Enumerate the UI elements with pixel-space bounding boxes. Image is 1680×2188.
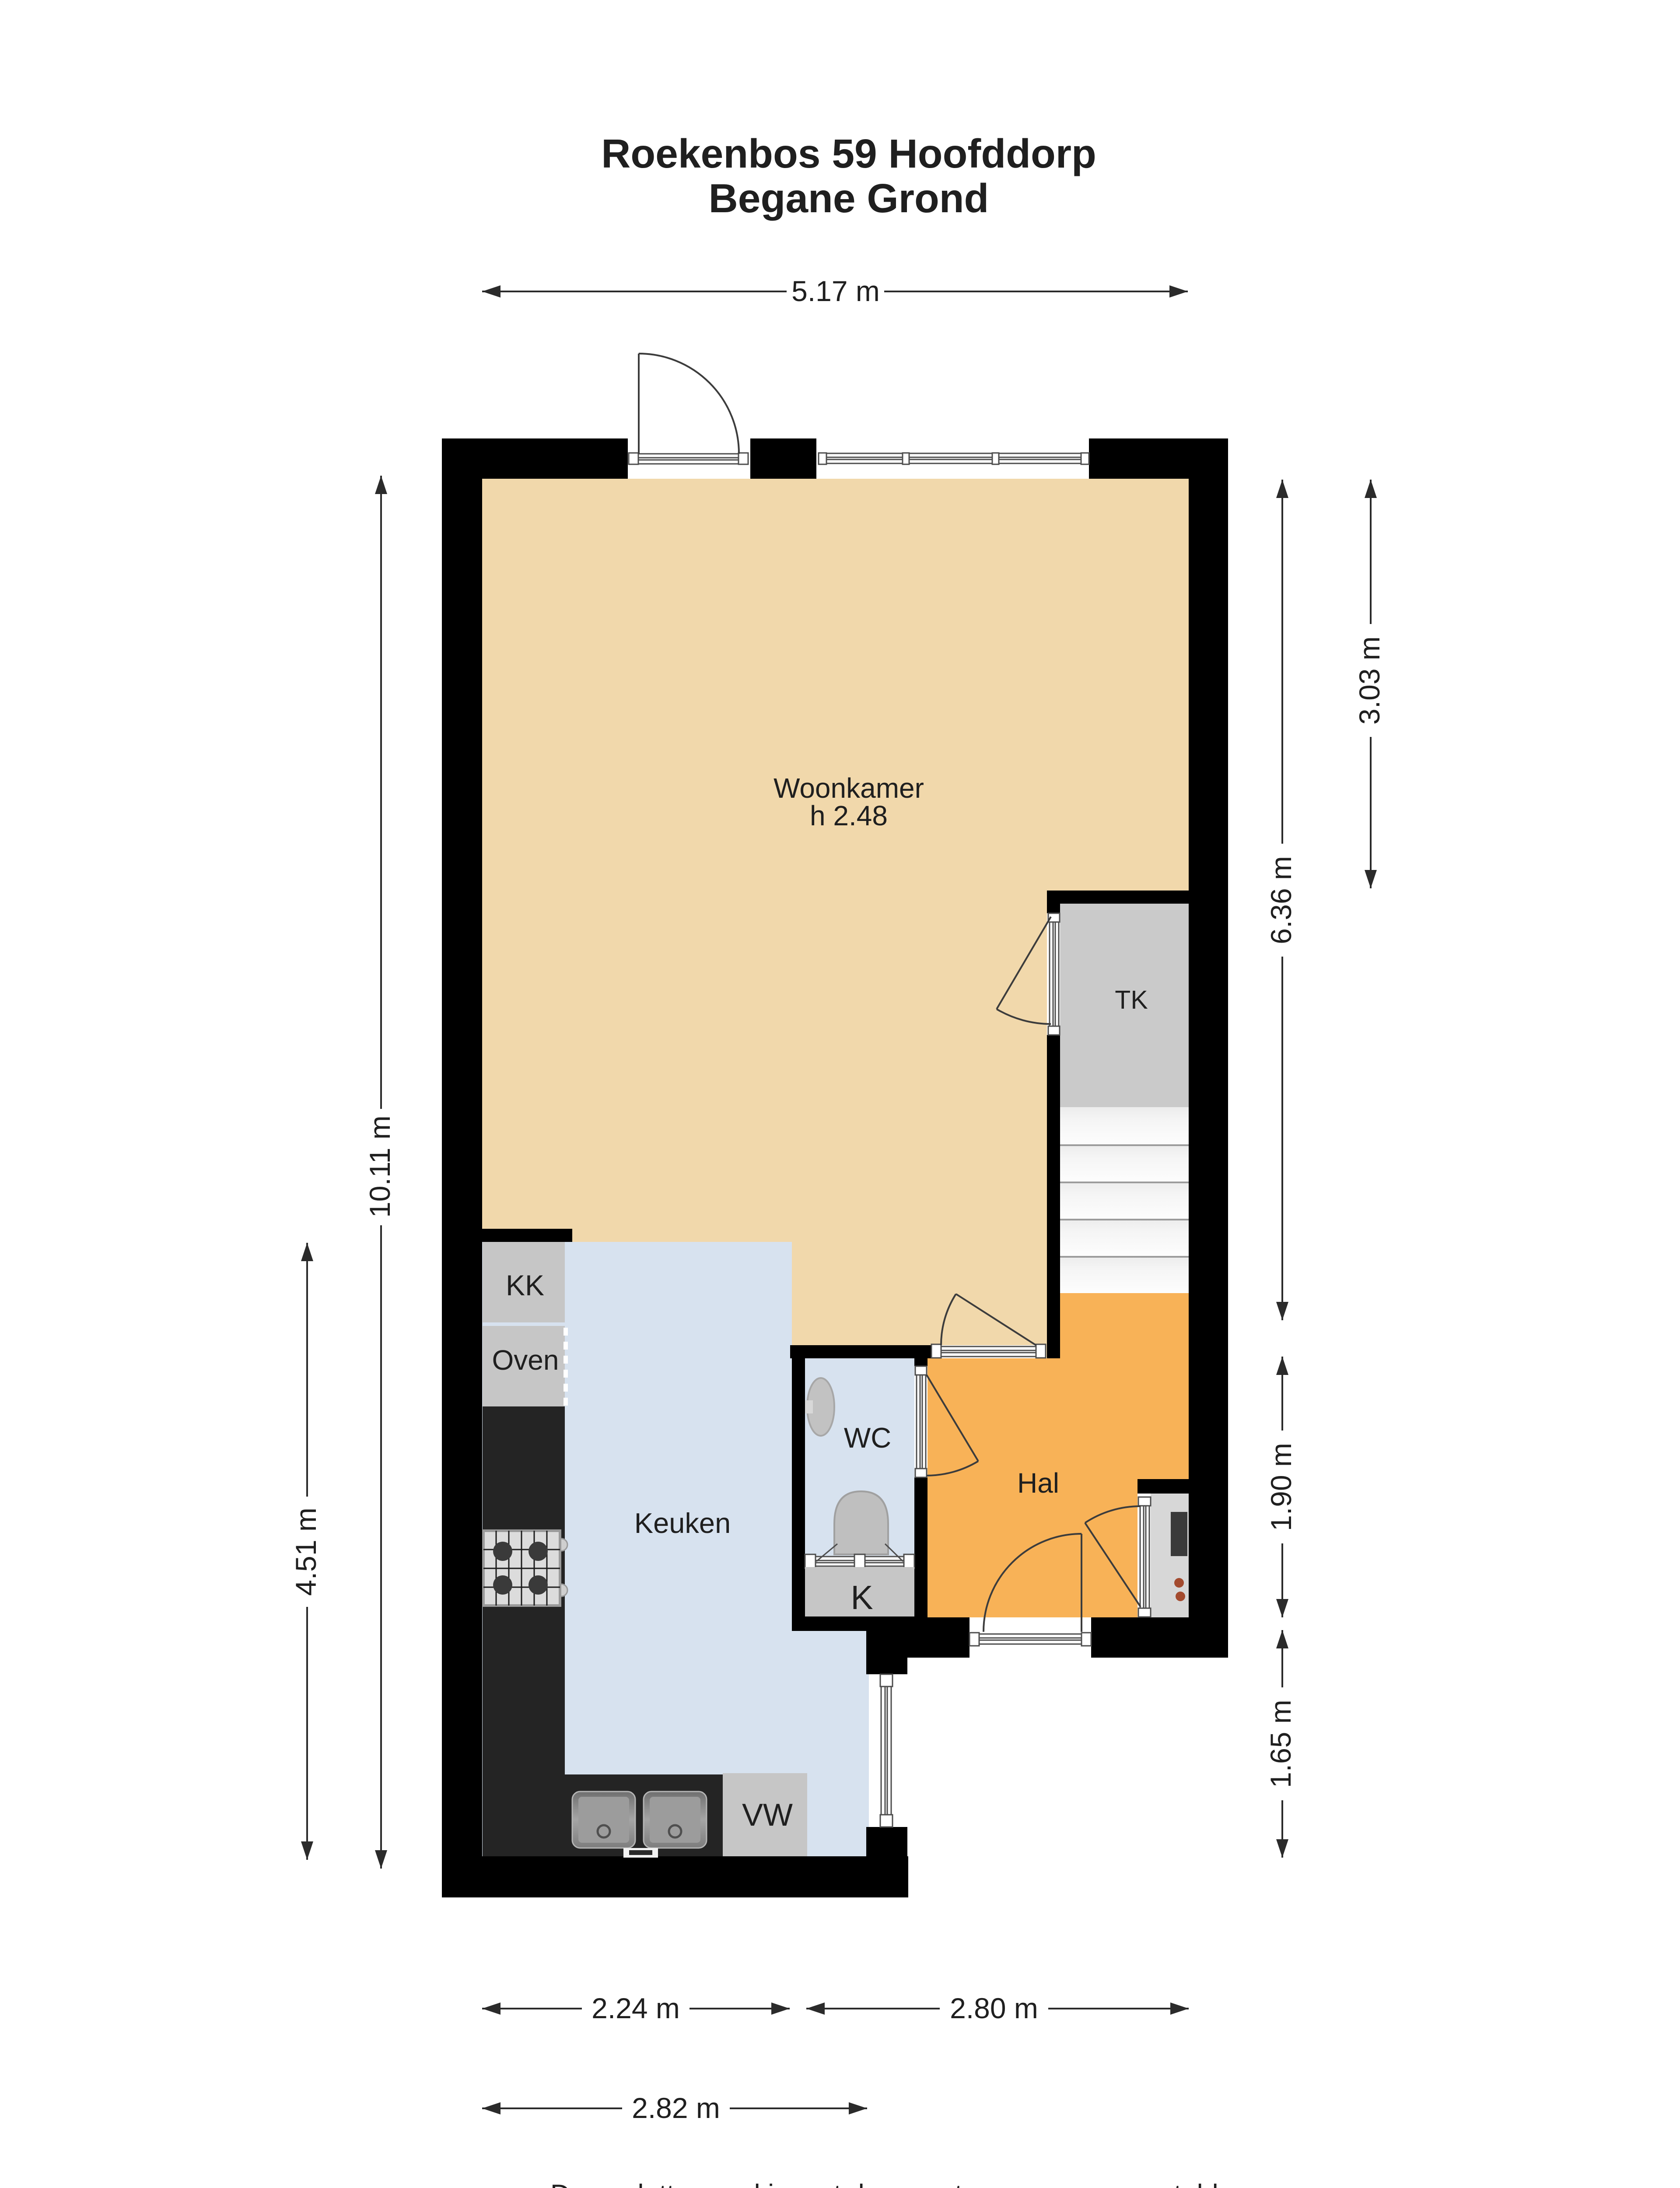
svg-text:KK: KK [506,1269,544,1301]
svg-text:2.80 m: 2.80 m [950,1992,1038,2024]
svg-text:TK: TK [1115,985,1148,1014]
svg-text:1.90 m: 1.90 m [1265,1443,1297,1531]
svg-text:10.11 m: 10.11 m [364,1115,396,1218]
svg-text:VW: VW [742,1798,793,1833]
svg-text:h 2.48: h 2.48 [810,800,888,831]
svg-text:2.24 m: 2.24 m [591,1992,680,2024]
svg-text:K: K [850,1579,873,1616]
svg-text:2.82 m: 2.82 m [632,2092,720,2124]
svg-text:4.51 m: 4.51 m [290,1508,322,1596]
svg-text:3.03 m: 3.03 m [1353,636,1386,725]
svg-text:6.36 m: 6.36 m [1265,856,1297,944]
svg-text:1.65 m: 1.65 m [1264,1700,1297,1788]
svg-text:Keuken: Keuken [634,1507,731,1539]
svg-text:Woonkamer: Woonkamer [773,772,924,804]
svg-text:Oven: Oven [492,1344,559,1376]
svg-text:Roekenbos 59 Hoofddorp: Roekenbos 59 Hoofddorp [601,131,1096,176]
svg-text:Deze plattegrond is met de mee: Deze plattegrond is met de meeste zorg s… [550,2179,1226,2188]
svg-text:WC: WC [844,1422,891,1454]
svg-text:5.17 m: 5.17 m [791,275,880,307]
svg-text:Begane Grond: Begane Grond [709,175,989,221]
svg-text:Hal: Hal [1017,1467,1059,1499]
